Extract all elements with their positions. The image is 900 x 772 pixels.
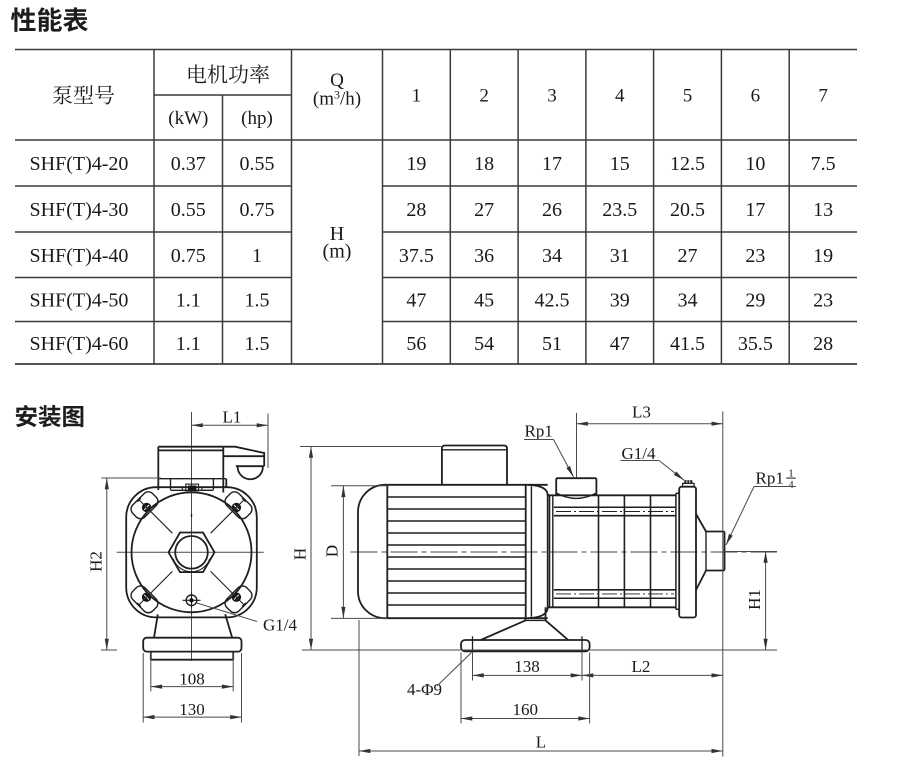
- svg-text:6: 6: [751, 86, 761, 107]
- svg-text:SHF(T)4-50: SHF(T)4-50: [30, 290, 129, 312]
- svg-text:4: 4: [615, 86, 625, 107]
- svg-text:26: 26: [542, 199, 562, 221]
- svg-text:1.1: 1.1: [176, 290, 201, 312]
- svg-text:4: 4: [788, 480, 794, 491]
- svg-text:17: 17: [745, 199, 765, 221]
- svg-text:1.5: 1.5: [245, 290, 270, 312]
- svg-text:L: L: [536, 732, 546, 751]
- svg-text:138: 138: [514, 657, 540, 676]
- svg-text:1.1: 1.1: [176, 333, 201, 355]
- svg-text:3: 3: [547, 86, 557, 107]
- svg-text:47: 47: [406, 290, 426, 312]
- svg-text:SHF(T)4-40: SHF(T)4-40: [30, 245, 129, 267]
- svg-text:1.5: 1.5: [245, 333, 270, 355]
- svg-text:0.75: 0.75: [171, 245, 206, 267]
- svg-text:28: 28: [406, 199, 426, 221]
- svg-text:51: 51: [542, 333, 562, 355]
- svg-text:18: 18: [474, 153, 494, 175]
- svg-text:160: 160: [513, 700, 539, 719]
- svg-text:31: 31: [610, 245, 630, 267]
- svg-text:20.5: 20.5: [670, 199, 705, 221]
- svg-text:L3: L3: [632, 403, 651, 422]
- svg-text:17: 17: [542, 153, 562, 175]
- svg-text:L1: L1: [223, 408, 242, 427]
- svg-text:Rp1: Rp1: [756, 469, 784, 488]
- svg-text:19: 19: [406, 153, 426, 175]
- svg-text:41.5: 41.5: [670, 333, 705, 355]
- svg-text:29: 29: [745, 290, 765, 312]
- svg-text:SHF(T)4-30: SHF(T)4-30: [30, 199, 129, 221]
- svg-text:H1: H1: [745, 589, 764, 610]
- svg-text:SHF(T)4-60: SHF(T)4-60: [30, 333, 129, 355]
- svg-text:54: 54: [474, 333, 494, 355]
- svg-text:5: 5: [683, 86, 693, 107]
- svg-text:15: 15: [610, 153, 630, 175]
- svg-text:23: 23: [813, 290, 833, 312]
- svg-text:2: 2: [479, 86, 489, 107]
- svg-text:28: 28: [813, 333, 833, 355]
- svg-text:23.5: 23.5: [602, 199, 637, 221]
- svg-text:56: 56: [406, 333, 426, 355]
- svg-text:42.5: 42.5: [534, 290, 569, 312]
- svg-text:27: 27: [474, 199, 494, 221]
- svg-text:0.37: 0.37: [171, 153, 206, 175]
- svg-text:Rp1: Rp1: [525, 421, 553, 440]
- svg-text:7: 7: [818, 86, 828, 107]
- svg-text:7.5: 7.5: [811, 153, 836, 175]
- svg-text:0.55: 0.55: [171, 199, 206, 221]
- svg-text:4-Φ9: 4-Φ9: [407, 680, 442, 699]
- svg-text:45: 45: [474, 290, 494, 312]
- svg-text:13: 13: [813, 199, 833, 221]
- svg-text:G1/4: G1/4: [263, 616, 298, 635]
- svg-text:(hp): (hp): [241, 108, 273, 129]
- svg-text:27: 27: [678, 245, 698, 267]
- svg-text:G1/4: G1/4: [622, 444, 657, 463]
- svg-text:SHF(T)4-20: SHF(T)4-20: [30, 153, 129, 175]
- svg-text:1: 1: [252, 245, 262, 267]
- svg-text:130: 130: [179, 700, 205, 719]
- svg-text:47: 47: [610, 333, 630, 355]
- svg-text:34: 34: [678, 290, 698, 312]
- svg-text:19: 19: [813, 245, 833, 267]
- svg-text:35.5: 35.5: [738, 333, 773, 355]
- svg-text:39: 39: [610, 290, 630, 312]
- svg-text:(m): (m): [323, 241, 352, 263]
- svg-text:10: 10: [745, 153, 765, 175]
- svg-text:H: H: [291, 548, 310, 560]
- svg-text:1: 1: [412, 86, 422, 107]
- svg-text:D: D: [323, 545, 342, 557]
- svg-text:(kW): (kW): [168, 108, 208, 129]
- svg-text:12.5: 12.5: [670, 153, 705, 175]
- svg-text:34: 34: [542, 245, 562, 267]
- svg-text:0.75: 0.75: [240, 199, 275, 221]
- svg-text:37.5: 37.5: [399, 245, 434, 267]
- svg-text:L2: L2: [632, 657, 651, 676]
- svg-text:0.55: 0.55: [240, 153, 275, 175]
- svg-text:1: 1: [788, 467, 794, 479]
- svg-text:108: 108: [179, 670, 205, 689]
- svg-text:H2: H2: [87, 551, 106, 572]
- svg-text:23: 23: [745, 245, 765, 267]
- svg-text:36: 36: [474, 245, 494, 267]
